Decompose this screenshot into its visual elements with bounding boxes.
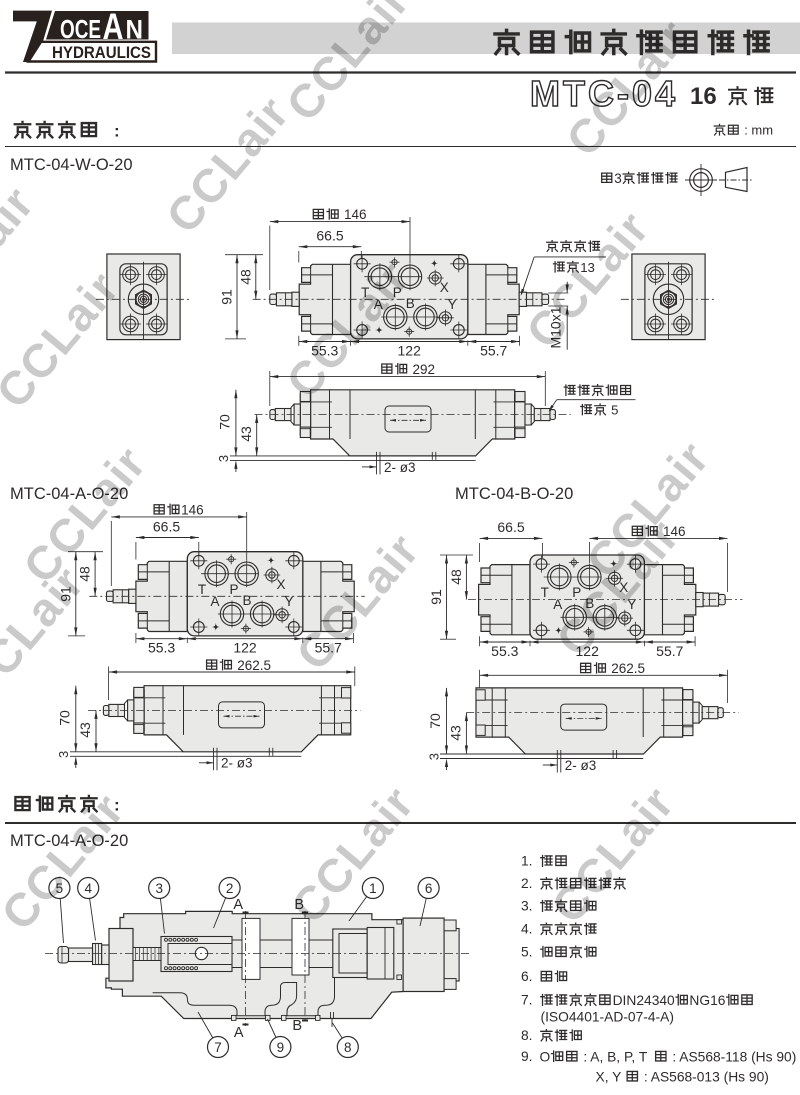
svg-text:292: 292 — [409, 362, 435, 377]
svg-text:16: 16 — [690, 83, 717, 110]
svg-text:55.7: 55.7 — [480, 343, 507, 359]
svg-text:55.3: 55.3 — [148, 640, 175, 656]
svg-text:A: A — [233, 897, 243, 913]
svg-text:CCLair: CCLair — [281, 776, 425, 933]
svg-text:7.: 7. — [521, 993, 533, 1008]
svg-text:2.: 2. — [521, 876, 533, 891]
svg-text:HYDRAULICS: HYDRAULICS — [52, 44, 151, 62]
svg-text:MTC-04-B-O-20: MTC-04-B-O-20 — [455, 485, 573, 503]
svg-text:43: 43 — [448, 725, 464, 741]
svg-text:8: 8 — [344, 1040, 352, 1055]
svg-text:X: X — [440, 280, 449, 295]
svg-text:1: 1 — [369, 881, 377, 896]
svg-text:91: 91 — [219, 289, 235, 305]
svg-text:3: 3 — [216, 455, 231, 462]
svg-text:DIN24340: DIN24340 — [613, 993, 675, 1008]
svg-text:2- ø3: 2- ø3 — [565, 758, 597, 773]
svg-text:66.5: 66.5 — [316, 228, 343, 244]
svg-text:122: 122 — [398, 343, 422, 359]
svg-text:55.7: 55.7 — [656, 643, 683, 659]
svg-text:7: 7 — [214, 1040, 222, 1055]
svg-text:55.3: 55.3 — [491, 643, 518, 659]
svg-text:: mm: : mm — [741, 123, 774, 138]
svg-text:6.: 6. — [521, 969, 533, 984]
svg-text:1.: 1. — [521, 854, 533, 869]
svg-text:MTC-04-W-O-20: MTC-04-W-O-20 — [10, 156, 133, 174]
svg-text:43: 43 — [77, 722, 93, 738]
svg-text:70: 70 — [216, 414, 232, 430]
svg-text:: AS568-013 (Hs 90): : AS568-013 (Hs 90) — [640, 1070, 769, 1085]
svg-text:70: 70 — [427, 713, 443, 729]
svg-text:2- ø3: 2- ø3 — [384, 460, 416, 475]
svg-text:NG16: NG16 — [689, 993, 725, 1008]
svg-text:3.: 3. — [521, 899, 533, 914]
svg-text:(ISO4401-AD-07-4-A): (ISO4401-AD-07-4-A) — [541, 1010, 674, 1025]
svg-text:3: 3 — [56, 751, 71, 758]
svg-text:262.5: 262.5 — [234, 658, 272, 673]
svg-text:262.5: 262.5 — [608, 661, 646, 676]
svg-text:8.: 8. — [521, 1028, 533, 1043]
svg-text::: : — [114, 122, 120, 141]
svg-text:CCLair: CCLair — [0, 556, 94, 713]
svg-text:66.5: 66.5 — [497, 519, 524, 535]
svg-text:5.: 5. — [521, 945, 533, 960]
svg-text:X: X — [276, 577, 285, 592]
svg-text:OCE: OCE — [60, 14, 101, 44]
svg-text:CCLair: CCLair — [276, 0, 420, 131]
svg-text:48: 48 — [448, 569, 464, 585]
svg-text:9: 9 — [277, 1040, 285, 1055]
svg-text:: A, B, P, T: : A, B, P, T — [580, 1050, 651, 1065]
svg-text:9.: 9. — [521, 1049, 533, 1064]
svg-text:P: P — [229, 582, 238, 597]
svg-text:4.: 4. — [521, 922, 533, 937]
svg-text:6: 6 — [425, 881, 433, 896]
svg-text:3: 3 — [427, 753, 442, 760]
svg-text:3: 3 — [155, 881, 163, 896]
svg-text:T: T — [198, 582, 206, 597]
svg-text:CCLair: CCLair — [541, 776, 685, 933]
svg-text:146: 146 — [340, 207, 366, 222]
svg-text:T: T — [541, 585, 549, 600]
svg-text:X, Y: X, Y — [596, 1070, 625, 1085]
svg-text:B: B — [292, 1018, 302, 1034]
svg-text:A: A — [234, 1025, 244, 1041]
svg-text:70: 70 — [56, 710, 72, 726]
svg-text:N: N — [126, 14, 144, 44]
svg-text:: AS568-118 (Hs 90): : AS568-118 (Hs 90) — [669, 1050, 797, 1065]
svg-text:2: 2 — [226, 881, 234, 896]
svg-text:122: 122 — [233, 640, 257, 656]
svg-text:91: 91 — [428, 589, 444, 605]
svg-text:146: 146 — [181, 503, 204, 518]
svg-text:4: 4 — [84, 881, 92, 896]
svg-text:B: B — [242, 593, 251, 608]
svg-text:5: 5 — [608, 403, 619, 418]
svg-text:CCLair: CCLair — [0, 176, 44, 333]
svg-text:CCLair: CCLair — [156, 86, 300, 243]
svg-text:O: O — [540, 1050, 551, 1065]
svg-text:43: 43 — [238, 426, 254, 442]
svg-text:66.5: 66.5 — [153, 518, 180, 534]
svg-text:48: 48 — [237, 269, 253, 285]
svg-text:2- ø3: 2- ø3 — [221, 756, 253, 771]
svg-text:3: 3 — [614, 171, 622, 186]
